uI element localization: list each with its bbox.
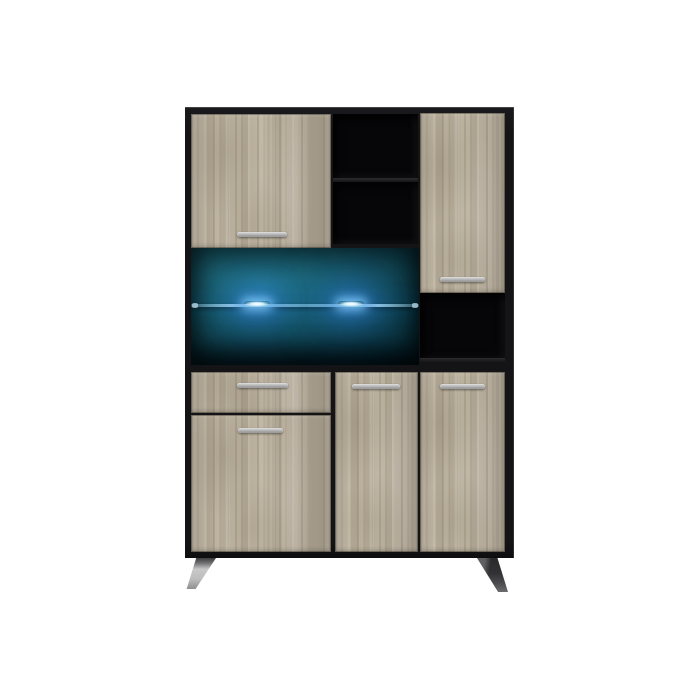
lower-shelf-niche (333, 182, 418, 244)
drawer-handle (237, 383, 288, 388)
led-display-compartment (191, 248, 419, 365)
glass-shelf (191, 304, 419, 307)
glass-shelf-right-cap (412, 303, 418, 308)
left-foot (186, 558, 216, 589)
top-right-door (420, 113, 505, 293)
bottom-right-door (420, 372, 505, 552)
upper-shelf-niche (333, 114, 418, 178)
bottom-middle-door-handle (352, 384, 400, 389)
top-left-door (191, 114, 331, 248)
bottom-left-door-handle (238, 428, 283, 433)
product-photo (0, 0, 700, 700)
cabinet-body (185, 107, 514, 558)
right-niche-floor (420, 358, 505, 362)
bottom-left-door (191, 415, 331, 552)
bottom-middle-door (335, 372, 418, 552)
top-left-door-handle (237, 232, 287, 237)
glass-shelf-left-cap (192, 303, 198, 308)
top-right-door-handle (440, 277, 485, 282)
bottom-right-door-handle (440, 384, 485, 389)
right-open-niche (420, 293, 505, 360)
right-foot (477, 558, 508, 592)
led-light-left (244, 301, 270, 307)
drawer-front (191, 372, 331, 413)
led-light-right (338, 301, 364, 307)
